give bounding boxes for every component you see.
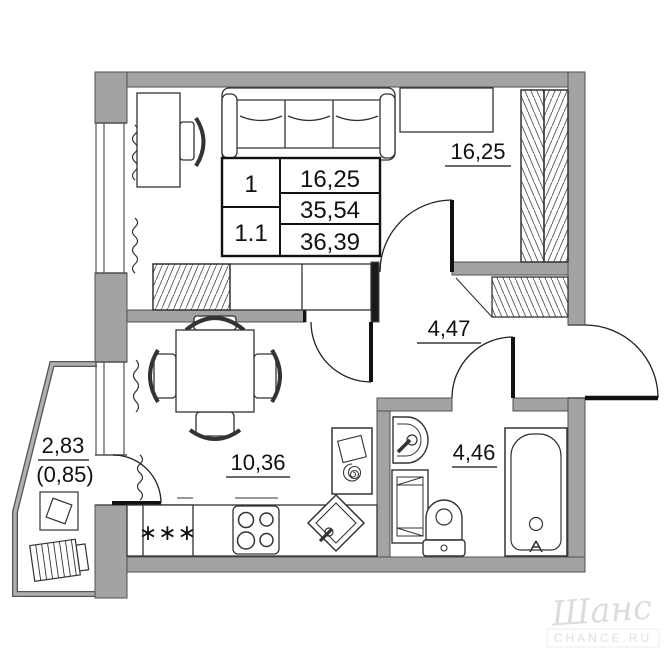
kitchen-area-label: 10,36	[230, 450, 285, 475]
wall-living-hall	[452, 262, 568, 275]
bathroom-area-label: 4,46	[453, 440, 496, 465]
stove	[233, 506, 279, 554]
table-area-total: 36,39	[300, 229, 360, 256]
kitchen	[127, 316, 377, 556]
wall-bath-top-right	[513, 398, 568, 411]
desk-chair	[180, 118, 204, 166]
desk	[137, 93, 180, 187]
wall-bottom	[127, 557, 585, 572]
balcony-table	[40, 492, 78, 530]
shelf-cabinet	[400, 88, 493, 132]
wall-kitchen-bath	[377, 398, 390, 557]
kitchen-door	[311, 322, 371, 382]
wall-left-top	[95, 72, 127, 123]
living-room-area-label: 16,25	[450, 139, 505, 164]
floor-plan-page: 1 1.1 16,25 35,54 36,39 16,25 4,47 10,36…	[0, 0, 670, 670]
table-area-no-balcony: 35,54	[300, 197, 360, 224]
watermark-brand-caption: CHANCE.RU	[554, 631, 652, 645]
sofa	[222, 88, 395, 160]
balcony-reduced-area-label: (0,85)	[36, 462, 93, 487]
dining-chair-left	[150, 350, 176, 402]
washing-machine	[392, 470, 428, 543]
tall-wardrobe	[521, 90, 568, 262]
wall-top	[95, 72, 585, 87]
hallway-wardrobe	[456, 277, 568, 317]
watermark-brand-script: Шанс	[549, 588, 653, 635]
info-table: 1 1.1 16,25 35,54 36,39	[222, 158, 380, 256]
bathroom-sink	[393, 417, 428, 463]
freezer-stars-icon: ∗∗∗	[139, 521, 197, 546]
table-area-living: 16,25	[300, 166, 360, 193]
floor-plan: 1 1.1 16,25 35,54 36,39 16,25 4,47 10,36…	[0, 0, 670, 670]
wardrobe-diagonal	[456, 278, 492, 317]
table-unit-rooms: 1	[244, 171, 257, 198]
dining-chair-right	[254, 350, 280, 402]
watermark: Шанс CHANCE.RU	[547, 588, 659, 647]
dining-chair-bottom	[190, 412, 240, 439]
balcony-door	[112, 455, 161, 503]
fridge	[332, 428, 372, 494]
hallway-area-label: 4,47	[428, 316, 471, 341]
wall-right-upper	[568, 72, 585, 325]
entrance-door	[585, 325, 658, 398]
balcony-rack	[30, 538, 89, 581]
wall-door-post	[371, 262, 379, 322]
table-unit-number: 1.1	[234, 220, 267, 247]
radiator-squiggle	[134, 360, 139, 412]
low-cabinet-row	[153, 264, 371, 310]
living-room-window	[96, 123, 124, 273]
bathtub	[505, 428, 567, 556]
balcony	[30, 492, 89, 581]
living-room-door	[380, 200, 452, 272]
balcony-area-label: 2,83	[42, 433, 85, 458]
wall-bath-top-left	[377, 398, 452, 411]
wall-left-bottom	[95, 505, 127, 598]
wall-left-mid	[95, 273, 127, 362]
toilet	[423, 500, 465, 556]
radiator-squiggle	[133, 218, 138, 273]
dining-chair-top	[186, 316, 244, 330]
wall-right-lower	[568, 398, 585, 572]
dining-table	[176, 330, 254, 412]
hallway	[456, 277, 568, 317]
kitchen-window	[96, 362, 124, 455]
bathroom	[392, 417, 567, 556]
bathroom-door	[452, 337, 513, 398]
